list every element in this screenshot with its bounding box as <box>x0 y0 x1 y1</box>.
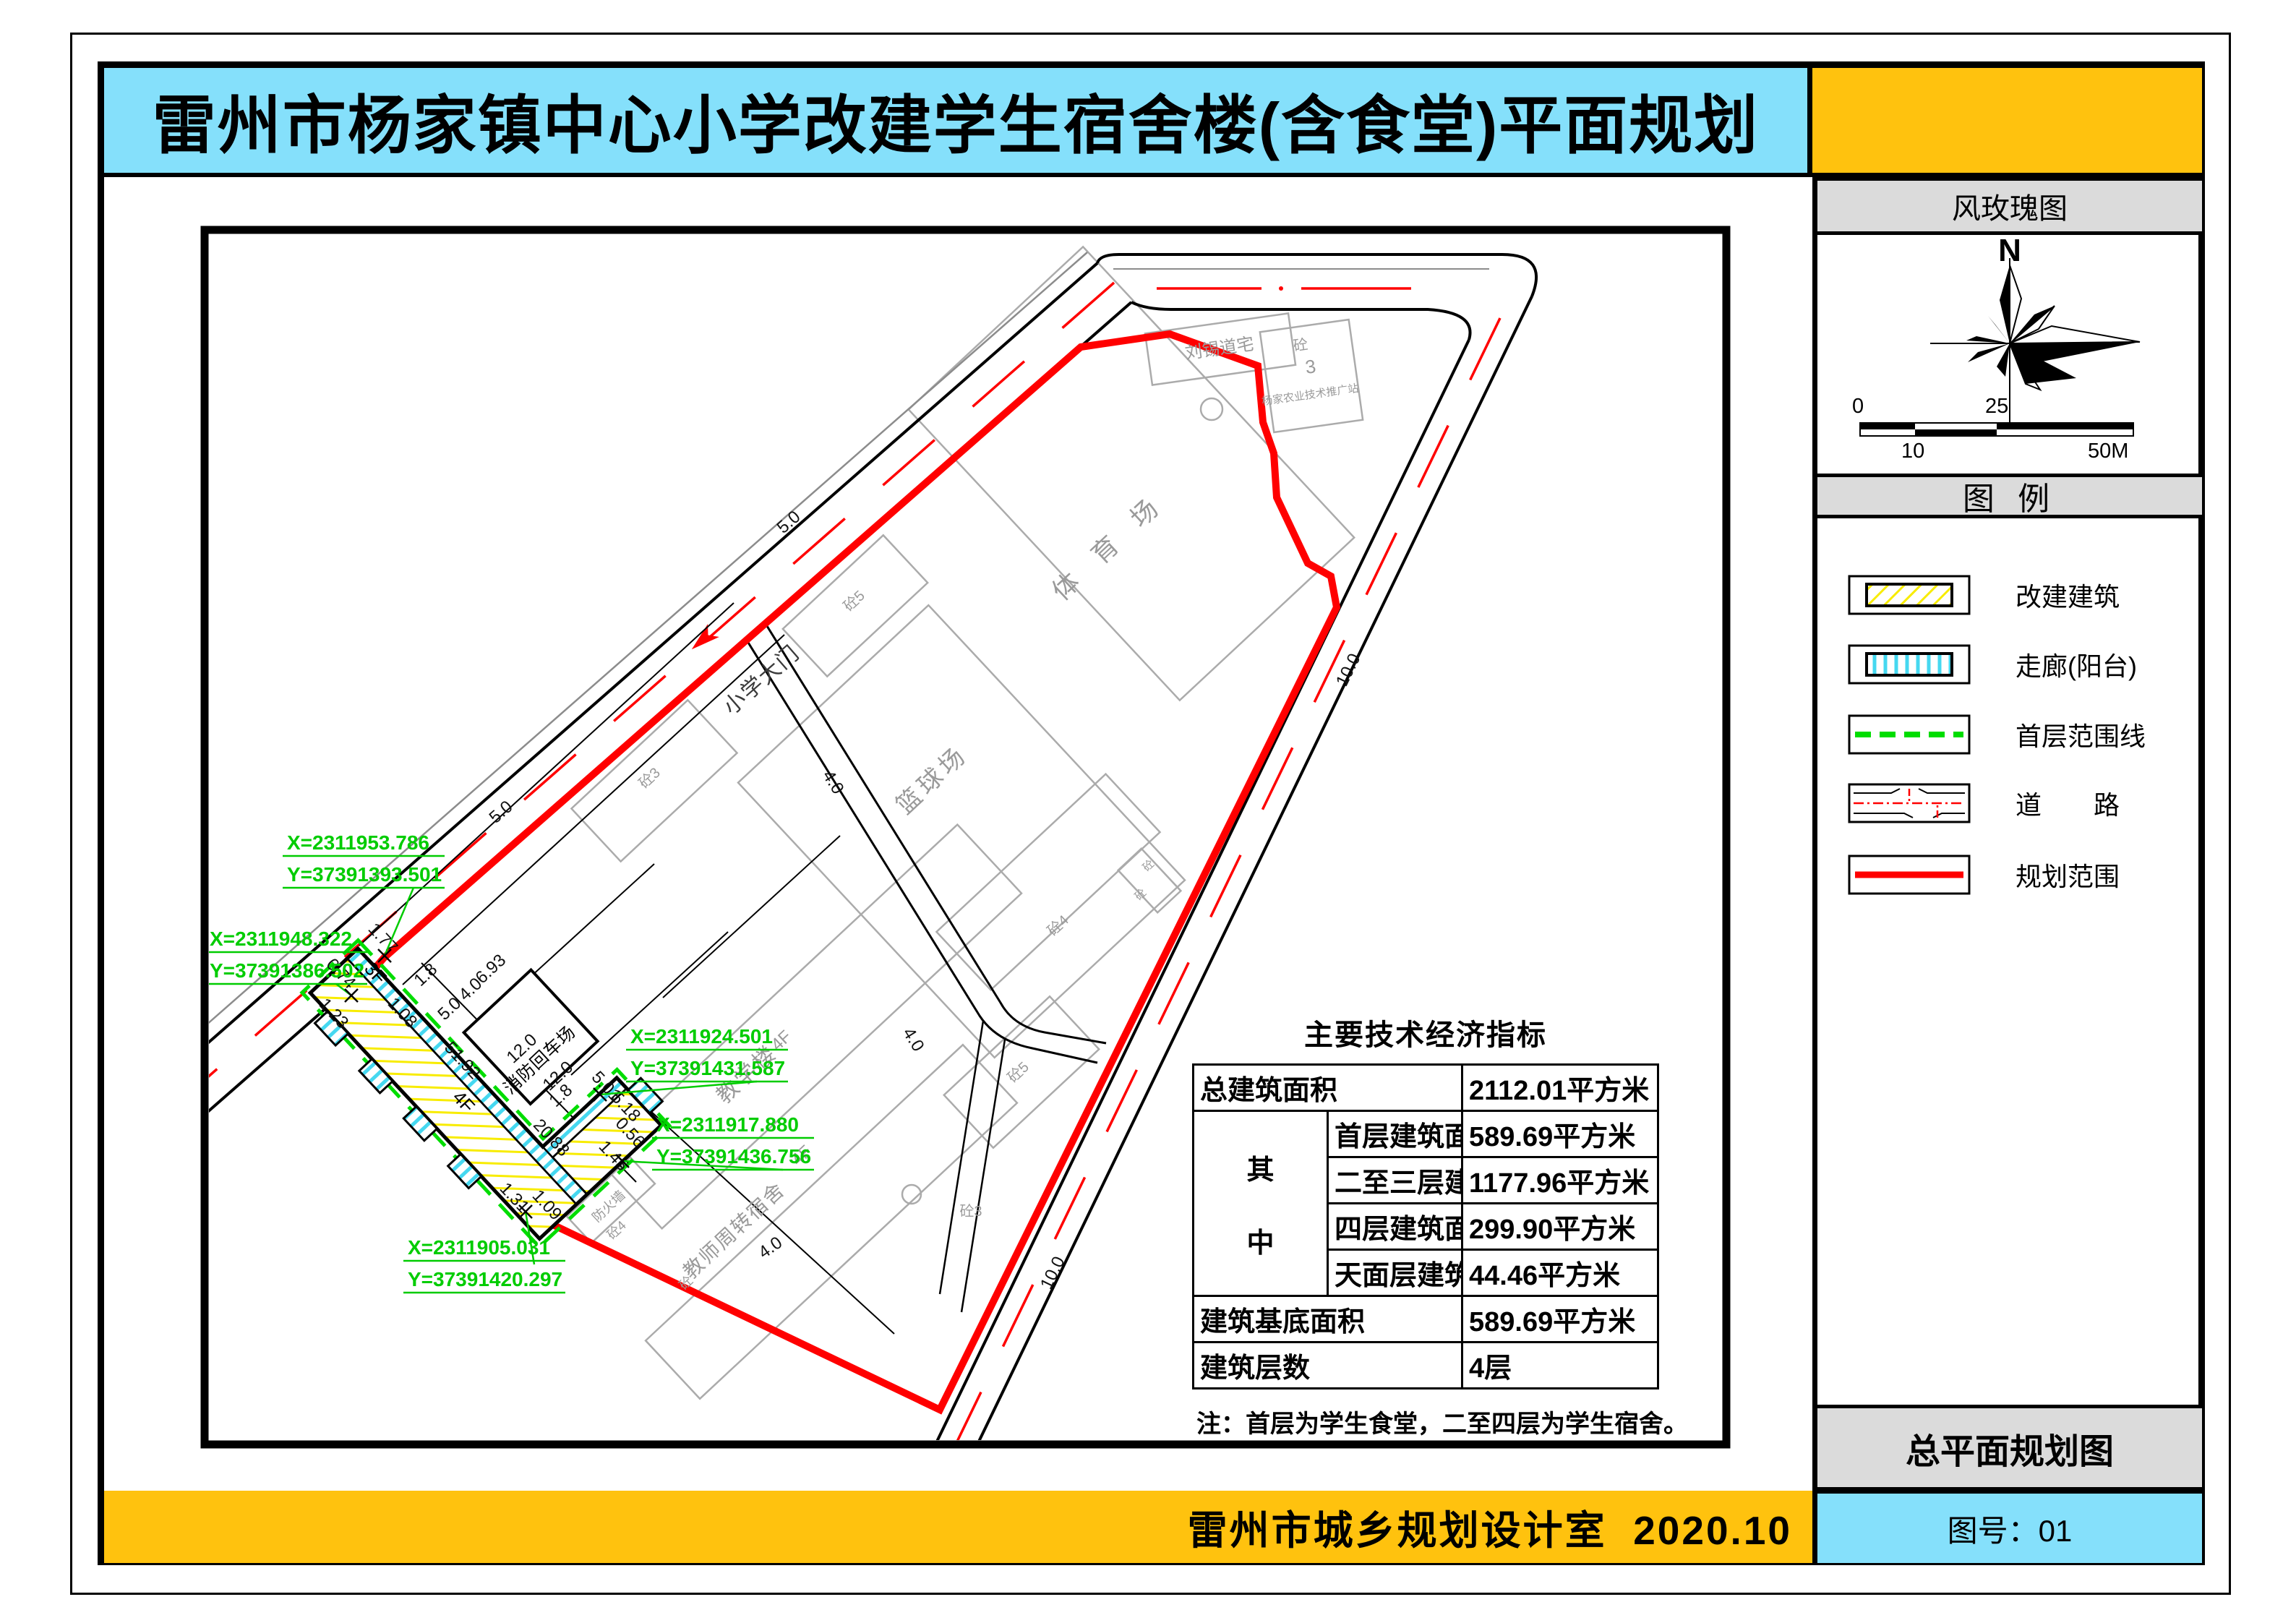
coord-y: Y=37391386.502 <box>210 959 364 982</box>
row-value: 589.69平方米 <box>1462 1111 1658 1157</box>
coord-y: Y=37391393.501 <box>287 863 442 886</box>
row-label: 首层建筑面积 <box>1328 1111 1462 1157</box>
coord-y: Y=37391431.587 <box>630 1057 785 1079</box>
plan-label: 砼3 <box>959 1203 982 1220</box>
row-value: 589.69平方米 <box>1462 1296 1658 1342</box>
group-label: 中 <box>1246 1220 1274 1260</box>
coord-x: X=2311905.031 <box>408 1236 550 1259</box>
indicators-grid: 总建筑面积 2112.01平方米 其 中 首层建筑面积 589.69平方米 二至… <box>1192 1063 1659 1389</box>
coord-x: X=2311917.880 <box>656 1113 799 1136</box>
row-value: 44.46平方米 <box>1462 1250 1658 1296</box>
coord-x: X=2311948.322 <box>210 928 352 950</box>
group-label: 其 <box>1246 1147 1274 1187</box>
row-label: 四层建筑面积 <box>1328 1204 1462 1250</box>
indicators-title: 主要技术经济指标 <box>1192 1011 1659 1053</box>
row-value: 2112.01平方米 <box>1462 1065 1658 1111</box>
row-label: 总建筑面积 <box>1194 1065 1462 1111</box>
row-label: 天面层建筑面积 <box>1328 1250 1462 1296</box>
row-value: 1177.96平方米 <box>1462 1157 1658 1204</box>
row-value: 4层 <box>1462 1342 1658 1389</box>
coord-x: X=2311953.786 <box>287 831 429 854</box>
coord-y: Y=37391420.297 <box>408 1268 562 1290</box>
row-label: 建筑层数 <box>1194 1342 1462 1389</box>
row-value: 299.90平方米 <box>1462 1204 1658 1250</box>
row-label: 二至三层建筑面积 <box>1328 1157 1462 1204</box>
site-plan: 体 育 场篮球场小学大门刘锡道宅砼3杨家农业技术推广站砼5砼3砼4砼5教学楼4F… <box>0 0 2296 1623</box>
plan-label: 砼 <box>1293 336 1309 355</box>
row-label: 建筑基底面积 <box>1194 1296 1462 1342</box>
road-centerline-dot <box>1279 286 1283 291</box>
coord-x: X=2311924.501 <box>630 1025 773 1048</box>
group-cell: 其 中 <box>1194 1111 1328 1296</box>
indicators-note: 注：首层为学生食堂，二至四层为学生宿舍。 <box>1196 1404 1702 1439</box>
indicators-table: 主要技术经济指标 总建筑面积 2112.01平方米 其 中 首层建筑面积 589… <box>1192 1011 1659 1389</box>
